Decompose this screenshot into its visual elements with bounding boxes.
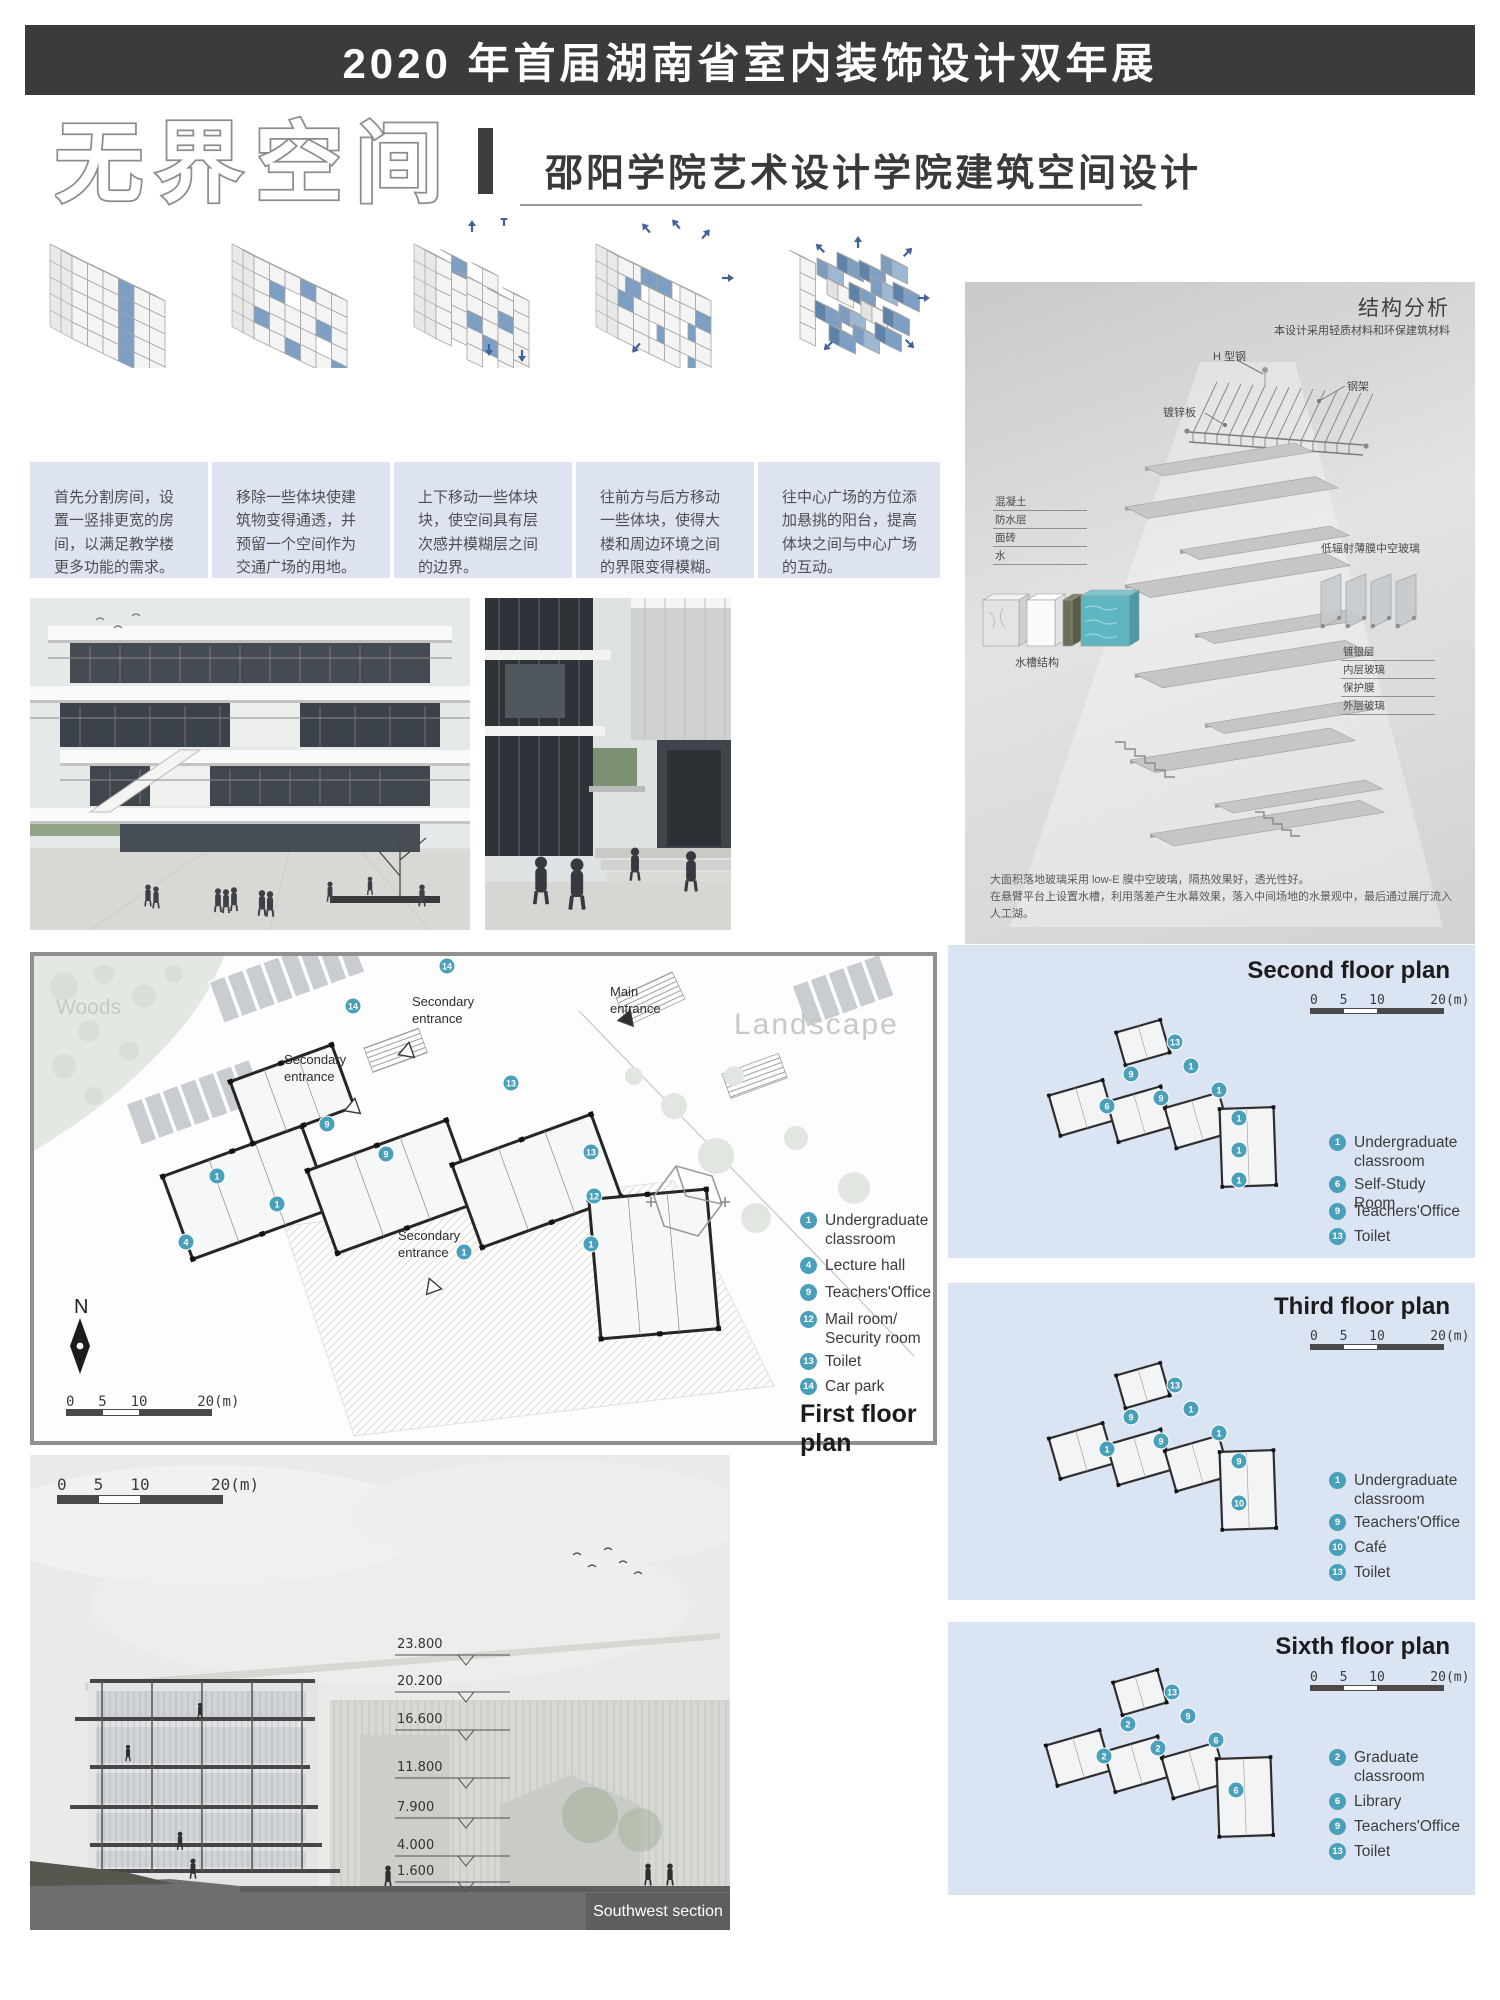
legend-item: 12 Mail room/ Security room — [800, 1310, 935, 1349]
room-number-marker: 1 — [1211, 1082, 1228, 1099]
room-number-marker: 1 — [269, 1196, 286, 1213]
legend-label: Teachers'Office — [1354, 1513, 1460, 1532]
room-number-marker: 2 — [1120, 1716, 1137, 1733]
legend-number: 10 — [1329, 1539, 1346, 1556]
legend-number: 12 — [800, 1311, 817, 1328]
legend-number: 13 — [1329, 1564, 1346, 1581]
scale-tick: 10 — [1369, 993, 1385, 1008]
room-number-marker: 1 — [1231, 1142, 1248, 1159]
legend-number: 13 — [1329, 1228, 1346, 1245]
subtitle-underline — [520, 204, 1142, 206]
scale-tick: 5 — [1340, 1670, 1348, 1685]
legend-label: Teachers'Office — [1354, 1817, 1460, 1836]
room-number-marker: 4 — [178, 1234, 195, 1251]
room-number-marker: 13 — [1167, 1034, 1184, 1051]
exhibition-title: 2020 年首届湖南省室内装饰设计双年展 — [342, 30, 1157, 91]
main-entrance-label: Main entrance — [610, 984, 680, 1018]
level-label: 23.800 — [397, 1637, 443, 1652]
room-number-marker: 9 — [319, 1116, 336, 1133]
southwest-section-drawing — [30, 1455, 730, 1930]
project-title: 无界空间 — [55, 114, 455, 212]
first-floor-plan-title: First floor plan — [800, 1400, 933, 1458]
structure-title: 结构分析 — [1358, 292, 1450, 322]
scale-tick: 20(m) — [1430, 993, 1469, 1008]
room-number-marker: 1 — [1183, 1058, 1200, 1075]
massing-diagram-5 — [758, 218, 940, 368]
landscape-label: Landscape — [734, 1008, 899, 1042]
room-number-marker: 9 — [1153, 1433, 1170, 1450]
scale-tick: 10 — [1369, 1329, 1385, 1344]
level-label: 16.600 — [397, 1712, 443, 1727]
sixth-floor-plan-drawing: 13922266 — [1020, 1640, 1320, 1890]
section-title-tag: Southwest section — [586, 1893, 730, 1930]
legend-item: 13 Toilet — [1329, 1563, 1469, 1582]
label-steel-frame: 钢架 — [1347, 378, 1369, 394]
legend-number: 6 — [1329, 1176, 1346, 1193]
label-water-tank: 水槽结构 — [1015, 654, 1059, 670]
legend-item: 13 Toilet — [800, 1352, 935, 1371]
exterior-rendering-entrance — [485, 598, 731, 930]
legend-number: 13 — [1329, 1843, 1346, 1860]
section-title: Southwest section — [593, 1903, 723, 1921]
legend-number: 2 — [1329, 1749, 1346, 1766]
room-number-marker: 9 — [1123, 1409, 1140, 1426]
title-divider-bar — [478, 128, 493, 194]
project-title-art: 无界空间 — [55, 112, 475, 212]
label-h-steel: H 型钢 — [1213, 348, 1246, 364]
location-key-icon — [646, 1160, 730, 1248]
sixth-floor-marker-layer: 13922266 — [1020, 1640, 1320, 1890]
level-label: 11.800 — [397, 1760, 443, 1775]
legend-label: Toilet — [1354, 1227, 1390, 1246]
scale-tick: 5 — [94, 1475, 104, 1494]
massing-caption-box-4: 往前方与后方移动一些体块，使得大楼和周边环境之间的界限变得模糊。 — [576, 462, 754, 578]
third-floor-marker-layer: 1391191910 — [1023, 1333, 1323, 1583]
woods-label: Woods — [56, 996, 121, 1020]
legend-label: Lecture hall — [825, 1256, 905, 1275]
legend-label: Toilet — [1354, 1842, 1390, 1861]
roof-layer-water: 水 — [993, 548, 1087, 565]
legend-item: 1 Undergraduate classroom — [800, 1211, 935, 1250]
legend-item: 1 Undergraduate classroom — [1329, 1471, 1454, 1510]
scale-tick: 20(m) — [197, 1394, 239, 1410]
second-floor-marker-layer: 1391691111 — [1023, 990, 1323, 1240]
room-number-marker: 1 — [1211, 1425, 1228, 1442]
legend-number: 13 — [800, 1353, 817, 1370]
label-galvanized-plate: 镀锌板 — [1163, 404, 1196, 420]
room-number-marker: 9 — [1180, 1708, 1197, 1725]
room-number-marker: 1 — [1231, 1172, 1248, 1189]
legend-number: 1 — [800, 1212, 817, 1229]
scale-tick: 5 — [98, 1394, 106, 1410]
legend-item: 9 Teachers'Office — [1329, 1513, 1469, 1532]
sixth-floor-panel: Sixth floor plan 0 5 10 20(m) 13922266 2… — [948, 1622, 1475, 1895]
level-label: 20.200 — [397, 1674, 443, 1689]
poster-page: 2020 年首届湖南省室内装饰设计双年展 无界空间 邵阳学院艺术设计学院建筑空间… — [0, 0, 1500, 2000]
legend-item: 4 Lecture hall — [800, 1256, 935, 1275]
legend-number: 1 — [1329, 1472, 1346, 1489]
secondary-entrance-label-1: Secondary entrance — [412, 994, 498, 1028]
room-number-marker: 10 — [1231, 1495, 1248, 1512]
legend-number: 9 — [1329, 1203, 1346, 1220]
massing-diagram-4 — [576, 218, 756, 368]
massing-caption-box-1: 首先分割房间，设置一竖排更宽的房间，以满足教学楼更多功能的需求。 — [30, 462, 208, 578]
massing-diagram-1 — [30, 218, 210, 368]
room-number-marker: 2 — [1096, 1748, 1113, 1765]
sixth-floor-scale-bar: 0 5 10 20(m) — [1310, 1670, 1444, 1691]
room-number-marker: 13 — [1167, 1377, 1184, 1394]
room-number-marker: 14 — [345, 998, 362, 1015]
scale-tick: 20(m) — [1430, 1329, 1469, 1344]
first-floor-scale-bar: 0 5 10 20(m) — [66, 1394, 212, 1416]
glass-layer-outer: 外层玻璃 — [1341, 698, 1435, 715]
room-number-marker: 6 — [1208, 1732, 1225, 1749]
legend-label: Teachers'Office — [825, 1283, 931, 1302]
section-scale-bar: 0 5 10 20(m) — [57, 1475, 223, 1504]
scale-tick: 10 — [130, 1475, 149, 1494]
scale-tick: 5 — [1340, 993, 1348, 1008]
room-number-marker: 1 — [1099, 1441, 1116, 1458]
third-floor-plan-drawing: 1391191910 — [1023, 1333, 1323, 1583]
school-subtitle: 邵阳学院艺术设计学院建筑空间设计 — [545, 142, 1201, 197]
legend-item: 14 Car park — [800, 1377, 935, 1396]
legend-number: 9 — [800, 1284, 817, 1301]
legend-label: Teachers'Office — [1354, 1202, 1460, 1221]
second-floor-scale-bar: 0 5 10 20(m) — [1310, 993, 1444, 1014]
glass-layer-inner: 内层玻璃 — [1341, 662, 1435, 679]
legend-label: Café — [1354, 1538, 1387, 1557]
room-number-marker: 1 — [1183, 1401, 1200, 1418]
level-label: 7.900 — [397, 1800, 434, 1815]
scale-tick: 10 — [131, 1394, 148, 1410]
legend-label: Toilet — [825, 1352, 861, 1371]
massing-caption-5: 往中心广场的方位添加悬挑的阳台，提高体块之间与中心广场的互动。 — [782, 486, 920, 579]
massing-caption-2: 移除一些体块使建筑物变得通透，并预留一个空间作为交通广场的用地。 — [236, 486, 370, 579]
structure-subtitle: 本设计采用轻质材料和环保建筑材料 — [1274, 322, 1450, 338]
legend-label: Mail room/ Security room — [825, 1310, 935, 1349]
legend-label: Graduate classroom — [1354, 1748, 1454, 1787]
legend-number: 9 — [1329, 1514, 1346, 1531]
section-panel: 23.800 20.200 16.600 11.800 7.900 4.000 … — [30, 1455, 730, 1930]
legend-item: 2 Graduate classroom — [1329, 1748, 1454, 1787]
legend-label: Undergraduate classroom — [1354, 1133, 1457, 1172]
room-number-marker: 13 — [583, 1144, 600, 1161]
massing-caption-box-2: 移除一些体块使建筑物变得通透，并预留一个空间作为交通广场的用地。 — [212, 462, 390, 578]
level-label: 1.600 — [397, 1864, 434, 1879]
scale-tick: 0 — [57, 1475, 67, 1494]
legend-item: 9 Teachers'Office — [800, 1283, 935, 1302]
glass-layer-film: 保护膜 — [1341, 680, 1435, 697]
secondary-entrance-label-2: Secondary entrance — [284, 1052, 370, 1086]
scale-tick: 0 — [66, 1394, 74, 1410]
legend-number: 9 — [1329, 1818, 1346, 1835]
room-number-marker: 1 — [1231, 1110, 1248, 1127]
scale-tick: 20(m) — [211, 1475, 259, 1494]
legend-label: Undergraduate classroom — [825, 1211, 935, 1250]
legend-label: Undergraduate classroom — [1354, 1471, 1457, 1510]
roof-layer-waterproof: 防水层 — [993, 512, 1087, 529]
structure-desc-line1: 大面积落地玻璃采用 low-E 膜中空玻璃，隔热效果好，透光性好。 — [990, 874, 1310, 886]
roof-layer-concrete: 混凝土 — [993, 494, 1087, 511]
room-number-marker: 2 — [1150, 1740, 1167, 1757]
massing-caption-box-3: 上下移动一些体块块，使空间具有层次感并模糊层之间的边界。 — [394, 462, 572, 578]
legend-label: Library — [1354, 1792, 1401, 1811]
legend-item: 6 Library — [1329, 1792, 1469, 1811]
third-floor-scale-bar: 0 5 10 20(m) — [1310, 1329, 1444, 1350]
structure-desc-line2: 在悬臂平台上设置水槽，利用落差产生水幕效果，落入中间场地的水景观中，最后通过展厅… — [990, 891, 1452, 920]
first-floor-plan-panel: 14141313129911141 Woods Landscape Second… — [30, 952, 937, 1445]
legend-number: 14 — [800, 1378, 817, 1395]
scale-tick: 20(m) — [1430, 1670, 1469, 1685]
massing-diagram-3 — [394, 218, 574, 368]
roof-layer-tile: 面砖 — [993, 530, 1087, 547]
room-number-marker: 6 — [1099, 1098, 1116, 1115]
north-label: N — [74, 1296, 88, 1319]
level-label: 4.000 — [397, 1838, 434, 1853]
legend-item: 13 Toilet — [1329, 1842, 1469, 1861]
glass-layer-list: 镀银层 内层玻璃 保护膜 外层玻璃 — [1341, 644, 1435, 716]
legend-item: 10 Café — [1329, 1538, 1469, 1557]
massing-caption-box-5: 往中心广场的方位添加悬挑的阳台，提高体块之间与中心广场的互动。 — [758, 462, 940, 578]
structure-exploded-axonometric — [965, 282, 1475, 944]
room-number-marker: 1 — [209, 1168, 226, 1185]
legend-number: 6 — [1329, 1793, 1346, 1810]
structure-description: 大面积落地玻璃采用 low-E 膜中空玻璃，隔热效果好，透光性好。 在悬臂平台上… — [990, 872, 1458, 923]
room-number-marker: 13 — [1164, 1684, 1181, 1701]
exhibition-header: 2020 年首届湖南省室内装饰设计双年展 — [25, 25, 1475, 95]
legend-item: 9 Teachers'Office — [1329, 1202, 1469, 1221]
exterior-rendering-courtyard — [30, 598, 470, 930]
room-number-marker: 9 — [378, 1146, 395, 1163]
third-floor-title: Third floor plan — [1274, 1293, 1450, 1321]
massing-caption-3: 上下移动一些体块块，使空间具有层次感并模糊层之间的边界。 — [418, 486, 552, 579]
third-floor-panel: Third floor plan 0 5 10 20(m) 1391191910… — [948, 1283, 1475, 1600]
legend-item: 1 Undergraduate classroom — [1329, 1133, 1454, 1172]
scale-tick: 5 — [1340, 1329, 1348, 1344]
room-number-marker: 6 — [1228, 1782, 1245, 1799]
second-floor-plan-drawing: 1391691111 — [1023, 990, 1323, 1240]
structure-analysis-panel: 结构分析 本设计采用轻质材料和环保建筑材料 H 型钢 钢架 镀锌板 混凝土 防水… — [965, 282, 1475, 944]
room-number-marker: 12 — [586, 1188, 603, 1205]
north-arrow-icon — [64, 1318, 104, 1374]
legend-label: Toilet — [1354, 1563, 1390, 1582]
room-number-marker: 9 — [1231, 1453, 1248, 1470]
glass-layer-silver: 镀银层 — [1341, 644, 1435, 661]
room-number-marker: 1 — [583, 1236, 600, 1253]
label-low-e-glass: 低辐射薄膜中空玻璃 — [1321, 540, 1420, 556]
massing-diagram-2 — [212, 218, 392, 368]
massing-caption-1: 首先分割房间，设置一竖排更宽的房间，以满足教学楼更多功能的需求。 — [54, 486, 188, 579]
legend-number: 4 — [800, 1257, 817, 1274]
legend-item: 13 Toilet — [1329, 1227, 1469, 1246]
room-number-marker: 13 — [503, 1075, 520, 1092]
room-number-marker: 9 — [1153, 1090, 1170, 1107]
room-number-marker: 9 — [1123, 1066, 1140, 1083]
legend-number: 1 — [1329, 1134, 1346, 1151]
second-floor-panel: Second floor plan 0 5 10 20(m) 139169111… — [948, 945, 1475, 1258]
scale-tick: 10 — [1369, 1670, 1385, 1685]
massing-caption-4: 往前方与后方移动一些体块，使得大楼和周边环境之间的界限变得模糊。 — [600, 486, 734, 579]
legend-item: 9 Teachers'Office — [1329, 1817, 1469, 1836]
second-floor-title: Second floor plan — [1247, 957, 1450, 985]
room-number-marker: 14 — [439, 958, 456, 975]
roof-layer-list: 混凝土 防水层 面砖 水 — [993, 494, 1087, 566]
secondary-entrance-label-3: Secondary entrance — [398, 1228, 484, 1262]
legend-label: Car park — [825, 1377, 884, 1396]
